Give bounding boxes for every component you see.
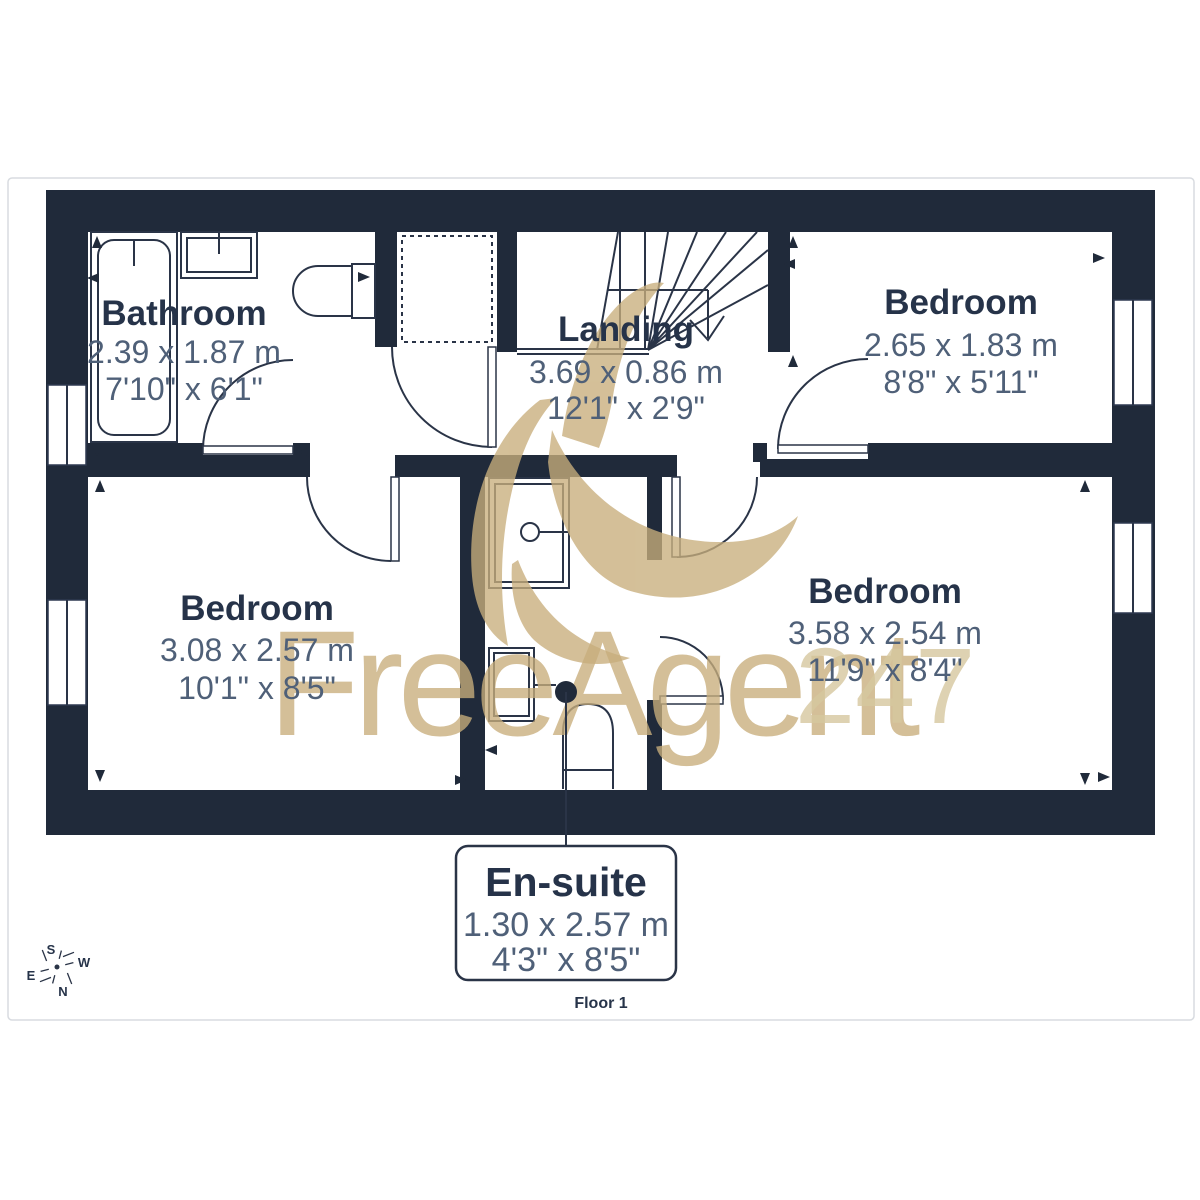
compass-north-label: N (58, 984, 67, 999)
bathroom-toilet (293, 264, 375, 318)
callout-imperial: 4'3" x 8'5" (492, 941, 641, 979)
window-left-bedroom (48, 600, 86, 705)
window-right-bedroom-top (1114, 300, 1152, 405)
svg-text:Bathroom: Bathroom (101, 294, 266, 333)
svg-text:2.39 x 1.87 m: 2.39 x 1.87 m (87, 334, 281, 370)
svg-text:7'10" x 6'1": 7'10" x 6'1" (105, 371, 263, 407)
callout-metric: 1.30 x 2.57 m (463, 906, 669, 944)
svg-text:10'1" x 8'5": 10'1" x 8'5" (178, 670, 336, 706)
svg-text:3.58 x 2.54 m: 3.58 x 2.54 m (788, 615, 982, 651)
room-label-bedroom-top-right: Bedroom 2.65 x 1.83 m 8'8" x 5'11" (864, 283, 1058, 400)
cupboard-dashed-outline (402, 236, 492, 342)
bathroom-sink (181, 232, 257, 278)
compass-east-label: E (27, 968, 36, 983)
svg-text:11'9" x 8'4": 11'9" x 8'4" (807, 652, 962, 688)
svg-text:12'1" x 2'9": 12'1" x 2'9" (547, 390, 705, 426)
room-label-bedroom-bottom-left: Bedroom 3.08 x 2.57 m 10'1" x 8'5" (160, 589, 354, 706)
svg-text:Landing: Landing (558, 310, 694, 349)
room-label-landing: Landing 3.69 x 0.86 m 12'1" x 2'9" (529, 310, 723, 426)
callout-room-name: En-suite (485, 859, 647, 905)
window-right-bedroom-bottom (1114, 523, 1152, 613)
compass-south-label: S (47, 942, 56, 957)
floor-label: Floor 1 (574, 995, 627, 1012)
window-left-bathroom (48, 385, 86, 465)
svg-text:2.65 x 1.83 m: 2.65 x 1.83 m (864, 327, 1058, 363)
svg-text:3.69 x 0.86 m: 3.69 x 0.86 m (529, 354, 723, 390)
svg-text:Bedroom: Bedroom (884, 283, 1038, 322)
svg-text:8'8" x 5'11": 8'8" x 5'11" (883, 364, 1038, 400)
room-label-bedroom-bottom-right: Bedroom 3.58 x 2.54 m 11'9" x 8'4" (788, 572, 982, 688)
svg-text:Bedroom: Bedroom (180, 589, 334, 628)
compass-west-label: W (78, 955, 91, 970)
svg-text:Bedroom: Bedroom (808, 572, 962, 611)
room-label-bathroom: Bathroom 2.39 x 1.87 m 7'10" x 6'1" (87, 294, 281, 407)
svg-text:3.08 x 2.57 m: 3.08 x 2.57 m (160, 632, 354, 668)
floorplan-canvas: FreeAgent 247 Bathroom 2.39 x 1.87 m 7'1… (0, 0, 1200, 1200)
